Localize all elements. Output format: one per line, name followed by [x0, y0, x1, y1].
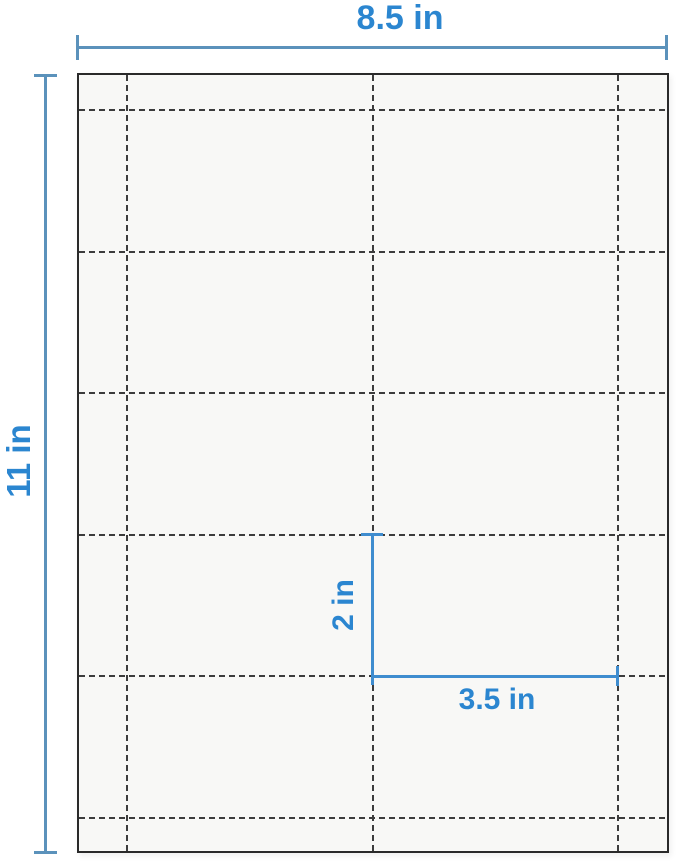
cut-line-vertical-1 — [372, 75, 374, 851]
sheet-height-dimension-line — [44, 75, 47, 853]
card-width-dimension-line — [372, 675, 618, 678]
sheet-height-bottom-tick — [34, 851, 57, 854]
card-height-dimension-line — [371, 535, 374, 685]
sheet-width-dimension-line — [77, 46, 668, 49]
sheet-height-top-tick — [34, 74, 57, 77]
card-width-right-tick — [616, 666, 619, 686]
cut-line-vertical-0 — [126, 75, 128, 851]
sheet-width-left-tick — [76, 35, 79, 60]
sheet-width-right-tick — [665, 35, 668, 60]
paper-sheet — [77, 73, 669, 853]
sheet-height-label: 11 in — [1, 406, 37, 516]
card-width-label: 3.5 in — [437, 683, 557, 719]
card-height-top-tick — [361, 533, 383, 536]
diagram-canvas: 8.5 in 11 in 2 in 3.5 in — [0, 0, 679, 862]
cut-line-vertical-2 — [617, 75, 619, 851]
card-height-label: 2 in — [327, 563, 359, 647]
sheet-width-label: 8.5 in — [320, 0, 480, 40]
